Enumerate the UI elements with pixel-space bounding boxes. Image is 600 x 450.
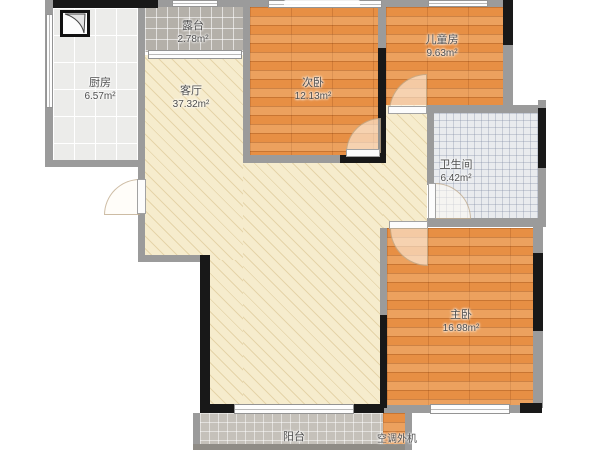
wall-master-left-black — [380, 315, 387, 408]
wall-kids-right-black — [503, 0, 513, 45]
living-room-area: 37.32m² — [173, 99, 210, 112]
entrance-door — [137, 179, 146, 214]
kids-room-door — [388, 106, 427, 114]
wall-kitchen-bottom — [45, 160, 145, 167]
master-bedroom-name: 主卧 — [450, 309, 472, 321]
wall-kids-bottom — [427, 105, 546, 113]
master-bottom-window — [430, 404, 510, 414]
bedroom2-label: 次卧 12.13m² — [295, 77, 332, 103]
wall-master-right-black — [533, 253, 543, 331]
ac-platform-name: 空调外机 — [377, 434, 417, 445]
living-balcony-sliding-door — [234, 404, 354, 414]
living-room-name: 客厅 — [180, 85, 202, 97]
bathroom-label: 卫生间 6.42m² — [440, 159, 473, 185]
wall-living-step — [138, 255, 202, 262]
entrance-door-arc — [104, 179, 140, 215]
hallway-floor — [383, 105, 427, 228]
wall-bath-right-black — [538, 108, 546, 168]
master-bedroom-label: 主卧 16.98m² — [443, 309, 480, 335]
wall-kitchen-right — [138, 8, 145, 165]
wall-living-column-black — [200, 255, 210, 407]
terrace-label: 露台 2.78m² — [177, 20, 208, 46]
kids-room-area: 9.63m² — [426, 48, 459, 61]
wall-master-bottom-black — [520, 403, 542, 413]
balcony-label: 阳台 — [283, 431, 305, 445]
terrace-area: 2.78m² — [177, 34, 208, 47]
top-balcony-area: 2.58m² — [284, 0, 360, 3]
master-bedroom-area: 16.98m² — [443, 323, 480, 336]
living-room-label: 客厅 37.32m² — [173, 85, 210, 111]
bedroom2-door — [346, 149, 380, 157]
kitchen-area: 6.57m² — [84, 91, 115, 104]
terrace-bottom-window — [148, 50, 242, 59]
living-room-floor-center — [243, 160, 383, 407]
kids-room-name: 儿童房 — [426, 34, 459, 46]
kitchen-left-window — [46, 14, 53, 108]
terrace-name: 露台 — [182, 20, 204, 32]
kids-room-label: 儿童房 9.63m² — [426, 34, 459, 60]
top-balcony-area-label: 2.58m² — [284, 0, 360, 7]
wall-entry-lower — [138, 212, 145, 257]
floor-plan: 厨房 6.57m² 露台 2.78m² 客厅 37.32m² 次卧 12.13m… — [0, 0, 600, 450]
wall-terrace-bedroom2 — [243, 7, 250, 160]
bedroom2-name: 次卧 — [302, 77, 324, 89]
wall-master-bottom-left — [380, 405, 430, 413]
wall-balcony-bottom — [193, 444, 405, 450]
kitchen-name: 厨房 — [89, 77, 111, 89]
bedroom2-area: 12.13m² — [295, 91, 332, 104]
balcony-name: 阳台 — [283, 431, 305, 443]
ac-platform-label: 空调外机 — [377, 434, 417, 447]
bathroom-name: 卫生间 — [440, 159, 473, 171]
wall-kitchen-top-black — [53, 0, 158, 8]
wall-bath-left — [427, 113, 434, 185]
wall-entry-upper — [138, 165, 145, 180]
terrace-top-window — [172, 0, 218, 7]
wall-living-bottom-black-right — [352, 404, 384, 413]
bathroom-area: 6.42m² — [440, 173, 473, 186]
kitchen-appliance-icon — [60, 10, 90, 42]
kids-top-window — [428, 0, 488, 7]
kitchen-label: 厨房 6.57m² — [84, 77, 115, 103]
wall-bath-bottom — [427, 218, 546, 227]
bathroom-door — [428, 183, 436, 219]
